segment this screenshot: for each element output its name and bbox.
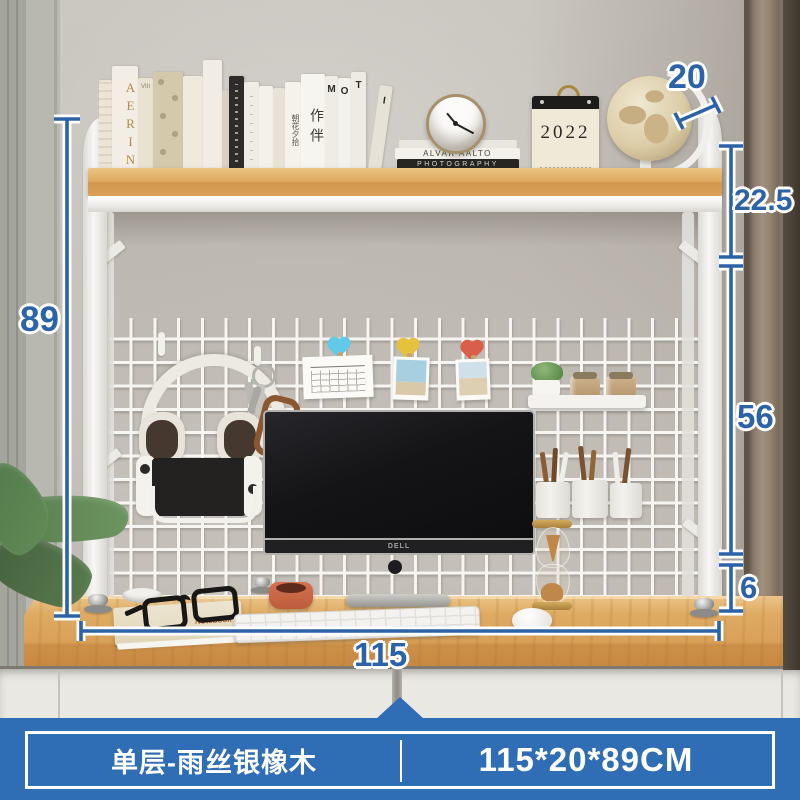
banner-variant-label: 单层-雨丝银橡木 <box>28 741 400 780</box>
book-m: M <box>325 76 338 170</box>
beam-shadow <box>100 212 702 246</box>
product-photo: AERIN VIII 朝花夕拾 作伴 M O T I ALVAR AALTO P… <box>0 0 800 800</box>
book-aerin: AERIN <box>112 66 138 170</box>
photo-sand <box>395 381 425 395</box>
dimension-label-depth: 20 <box>668 58 706 97</box>
glasses-bridge <box>177 594 191 609</box>
mouse <box>512 608 552 632</box>
book-i: I <box>368 85 393 172</box>
joycon-stick <box>140 464 150 474</box>
glasses-lens <box>191 585 240 624</box>
monitor-base <box>346 594 450 607</box>
wall-hook <box>158 332 165 356</box>
calendar-screw <box>540 100 544 104</box>
pinned-photo <box>455 358 490 400</box>
book-zuoban: 作伴 <box>301 74 325 170</box>
dimension-label-height: 89 <box>20 300 59 340</box>
headphone-pad <box>224 420 256 460</box>
book-spine <box>273 88 285 170</box>
desk-calendar: 2022 <box>532 96 599 178</box>
jar-lid <box>609 372 633 379</box>
book-spine-black <box>229 76 244 170</box>
book-spine <box>259 86 273 170</box>
shelf-foot-base <box>84 605 112 613</box>
switch-wall-holder <box>150 486 258 523</box>
spine-letter: T <box>351 80 366 91</box>
book-spine <box>99 80 112 170</box>
wall-hook <box>254 346 261 366</box>
spine-letter: I <box>377 95 391 108</box>
headphone-pad <box>146 420 178 460</box>
book-spine <box>222 90 229 170</box>
curtain-front-fold <box>783 0 800 670</box>
book-viii: VIII <box>138 78 153 170</box>
dimension-label-middle-clearance: 56 <box>737 398 774 436</box>
pen-holder <box>572 480 608 518</box>
banner-notch <box>376 697 424 719</box>
drawer-seam <box>781 670 783 718</box>
photo-sand <box>459 378 488 396</box>
dimension-label-upper-clearance: 22.5 <box>734 184 792 218</box>
shelf-foot-base <box>690 609 718 617</box>
photo-sky <box>458 362 487 379</box>
book-spine <box>244 82 259 170</box>
book-spine-patterned <box>153 72 183 170</box>
monitor-brand: DELL <box>265 540 533 553</box>
spine-letter: O <box>338 86 351 97</box>
monitor-cable-hole <box>388 560 402 574</box>
shelf-top-board <box>88 168 722 196</box>
pen-holder <box>610 483 642 518</box>
hourglass-sand-pile <box>541 583 563 601</box>
orange-pot-opening <box>276 583 306 593</box>
shelf-back-post <box>682 212 694 602</box>
book-o: O <box>338 78 351 170</box>
calendar-clamp <box>532 96 599 109</box>
dimension-label-foot-height: 6 <box>740 570 757 606</box>
succulent-plant <box>531 362 563 382</box>
pinned-photo <box>392 356 429 400</box>
banner-divider <box>400 740 402 782</box>
clock-center <box>453 121 458 126</box>
clock-minute-hand <box>456 123 475 134</box>
floating-shelf <box>528 395 646 408</box>
banner-size-label: 115*20*89CM <box>400 741 772 779</box>
calendar-year: 2022 <box>532 122 599 144</box>
shelf-front-beam <box>88 196 722 212</box>
drawer-seam <box>58 670 60 718</box>
card-script <box>310 359 364 368</box>
dimension-label-width: 115 <box>354 636 407 674</box>
pinned-calendar-card <box>302 355 373 399</box>
pen-holder <box>536 482 570 518</box>
photo-sky <box>396 359 427 382</box>
book-t: T <box>351 72 366 170</box>
jar-lid <box>573 372 597 379</box>
calendar-screw <box>587 100 591 104</box>
alarm-clock <box>426 94 486 154</box>
book-spine <box>183 76 203 170</box>
book-chaohua: 朝花夕拾 <box>285 82 301 170</box>
card-date-grid <box>311 369 366 393</box>
monitor <box>265 412 533 540</box>
book-spine <box>203 60 222 170</box>
spine-letter: M <box>325 84 338 95</box>
